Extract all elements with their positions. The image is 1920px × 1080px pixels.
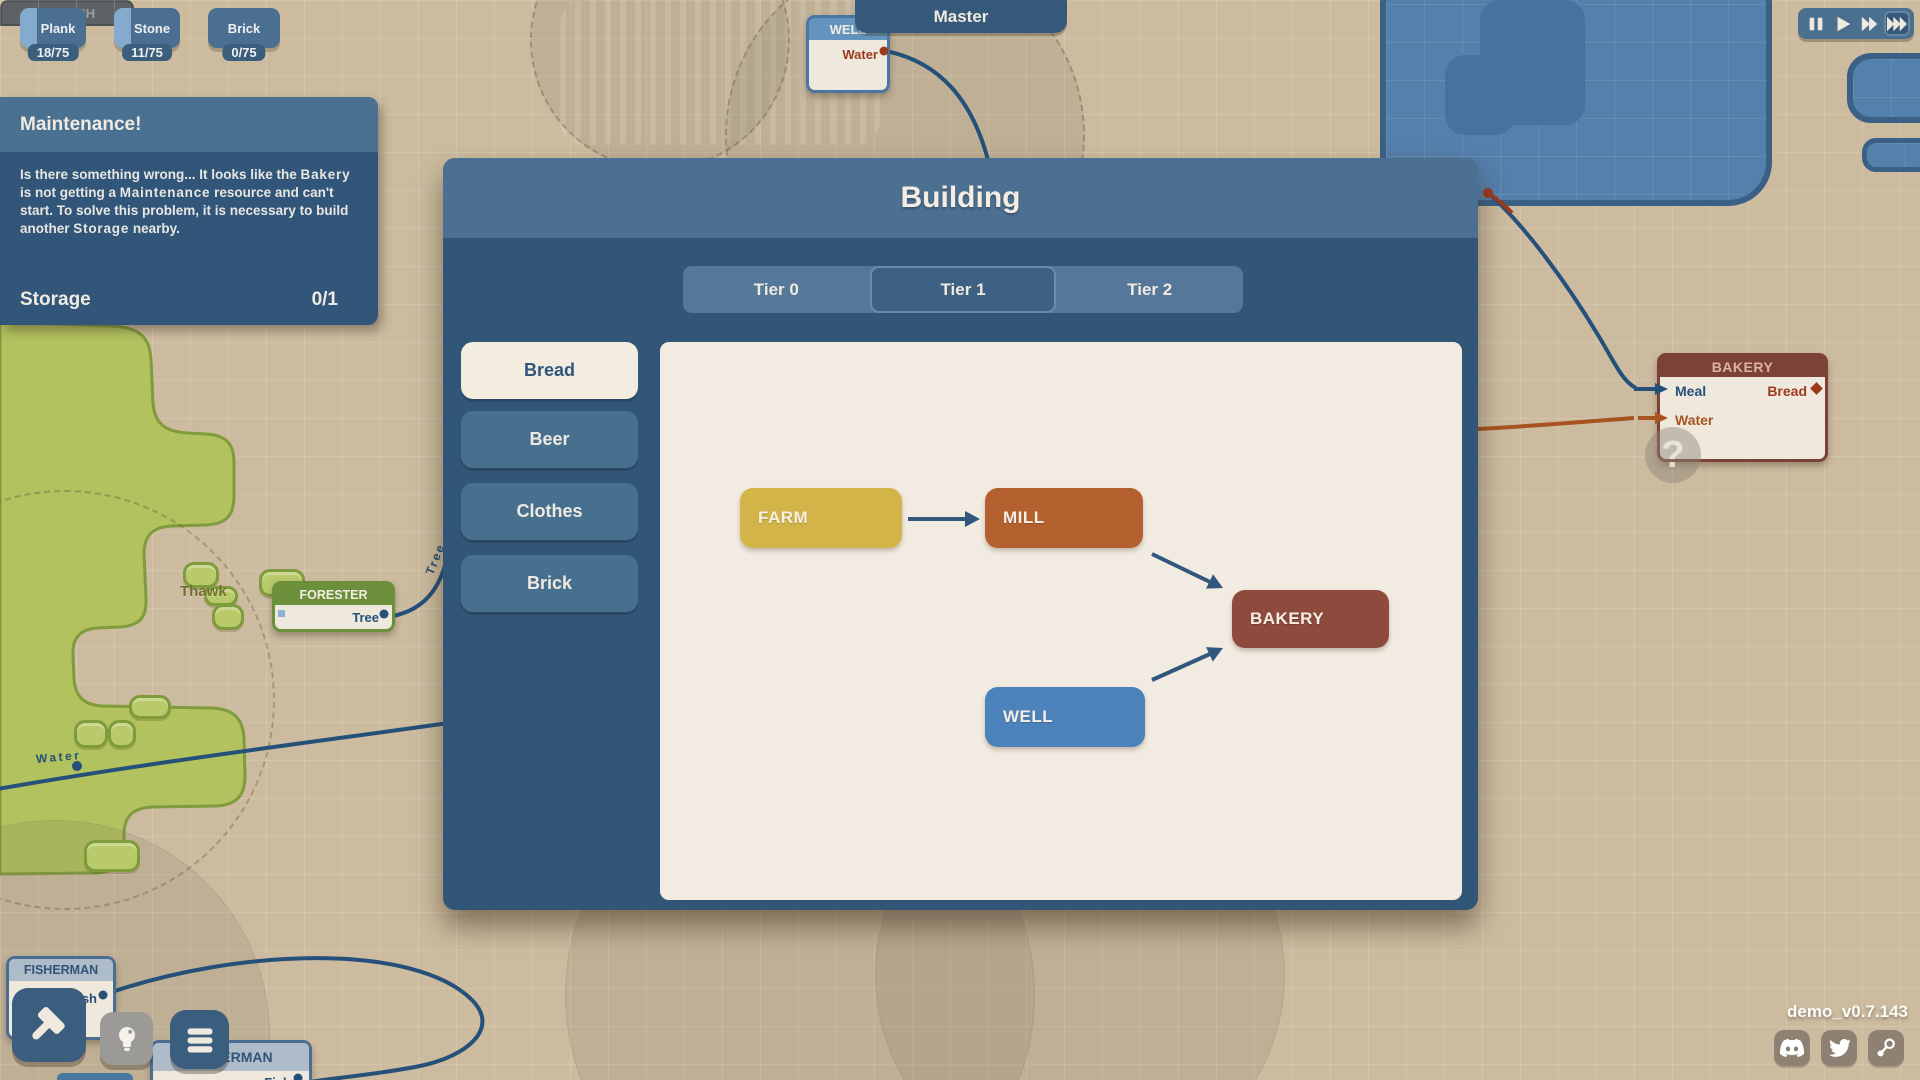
chain-node-mill[interactable]: MILL <box>985 488 1143 548</box>
master-tab-label: Master <box>934 7 989 27</box>
fastest-speed-button[interactable] <box>1884 11 1910 36</box>
input-water-label: Water <box>1675 412 1713 428</box>
chain-node-farm[interactable]: FARM <box>740 488 902 548</box>
steam-icon <box>1874 1036 1898 1060</box>
requirement-count: 0/1 <box>312 289 338 311</box>
play-button[interactable] <box>1830 11 1856 36</box>
production-chain-panel: FARM MILL BAKERY WELL <box>660 342 1462 900</box>
water-line-label: Water <box>35 748 81 766</box>
master-map-tab[interactable]: Master <box>855 0 1067 33</box>
water-edge-patch <box>1847 53 1920 123</box>
progress-chip <box>278 610 285 617</box>
resource-counter-stone[interactable]: Stone 11/75 <box>114 8 180 48</box>
map-node-bakery[interactable]: BAKERY Meal Water Bread ? <box>1657 353 1828 462</box>
fast-forward-button[interactable] <box>1857 11 1883 36</box>
hint-button[interactable] <box>100 1012 153 1065</box>
version-label: demo_v0.7.143 <box>1787 1002 1908 1022</box>
output-tree-label: Tree <box>352 610 379 625</box>
tree-blob <box>183 562 219 588</box>
resource-counter-brick[interactable]: Brick 0/75 <box>208 8 280 48</box>
tier-selector: Tier 0 Tier 1 Tier 2 <box>683 266 1243 313</box>
output-fish-label: Fish <box>264 1075 291 1080</box>
tree-blob <box>108 720 136 748</box>
build-button[interactable] <box>12 988 86 1062</box>
hammer-icon <box>27 1003 71 1047</box>
building-dialog: Building Tier 0 Tier 1 Tier 2 Bread Beer… <box>443 158 1478 910</box>
chain-node-well[interactable]: WELL <box>985 687 1145 747</box>
resource-name: Stone <box>124 21 170 36</box>
resource-count: 18/75 <box>28 44 79 61</box>
dialog-title: Building <box>443 158 1478 238</box>
tab-tier-1[interactable]: Tier 1 <box>870 266 1057 313</box>
play-icon <box>1833 14 1853 34</box>
water-edge-patch <box>1862 138 1920 172</box>
fast-forward-icon <box>1859 14 1881 34</box>
output-water-label: Water <box>842 47 878 62</box>
tree-blob <box>74 720 108 748</box>
node-title: BAKERY <box>1660 356 1825 377</box>
discord-button[interactable] <box>1774 1030 1810 1066</box>
water-deep-patch <box>1445 55 1515 135</box>
maintenance-message: Is there something wrong... It looks lik… <box>0 152 378 238</box>
map-node-partial <box>57 1073 133 1080</box>
steam-button[interactable] <box>1868 1030 1904 1066</box>
lightbulb-icon <box>111 1022 143 1056</box>
requirement-name: Storage <box>20 289 91 311</box>
pause-icon <box>1806 14 1826 34</box>
resource-name: Plank <box>31 21 76 36</box>
category-brick[interactable]: Brick <box>461 555 638 612</box>
input-meal-label: Meal <box>1675 383 1706 399</box>
twitter-button[interactable] <box>1821 1030 1857 1066</box>
game-map: Thawk Water Tree WELL Water FORESTER Tre… <box>0 0 1920 1080</box>
tree-blob <box>212 604 244 630</box>
map-node-forester[interactable]: FORESTER Tree <box>272 581 395 632</box>
tree-blob <box>129 695 171 719</box>
category-beer[interactable]: Beer <box>461 411 638 468</box>
tree-blob <box>84 840 140 872</box>
fastest-speed-icon <box>1885 14 1909 34</box>
question-mark-watermark: ? <box>1645 427 1701 483</box>
menu-button[interactable] <box>170 1010 229 1069</box>
node-title: FISHERMAN <box>9 959 113 981</box>
category-clothes[interactable]: Clothes <box>461 483 638 540</box>
resource-count: 0/75 <box>222 44 265 61</box>
resource-counter-plank[interactable]: Plank 18/75 <box>20 8 86 48</box>
output-bread-label: Bread <box>1767 383 1807 399</box>
maintenance-notification[interactable]: Maintenance! Is there something wrong...… <box>0 97 378 325</box>
maintenance-title: Maintenance! <box>0 97 378 152</box>
tree-blob <box>204 586 238 606</box>
pause-button[interactable] <box>1803 11 1829 36</box>
category-bread[interactable]: Bread <box>461 342 638 399</box>
tab-tier-0[interactable]: Tier 0 <box>683 266 870 313</box>
discord-icon <box>1780 1036 1804 1060</box>
tab-tier-2[interactable]: Tier 2 <box>1056 266 1243 313</box>
menu-icon <box>182 1023 218 1057</box>
node-title: FORESTER <box>275 584 392 605</box>
resource-name: Brick <box>228 21 261 36</box>
chain-node-bakery[interactable]: BAKERY <box>1232 590 1389 648</box>
resource-count: 11/75 <box>122 44 172 61</box>
speed-controls <box>1798 8 1914 39</box>
twitter-icon <box>1828 1037 1850 1059</box>
